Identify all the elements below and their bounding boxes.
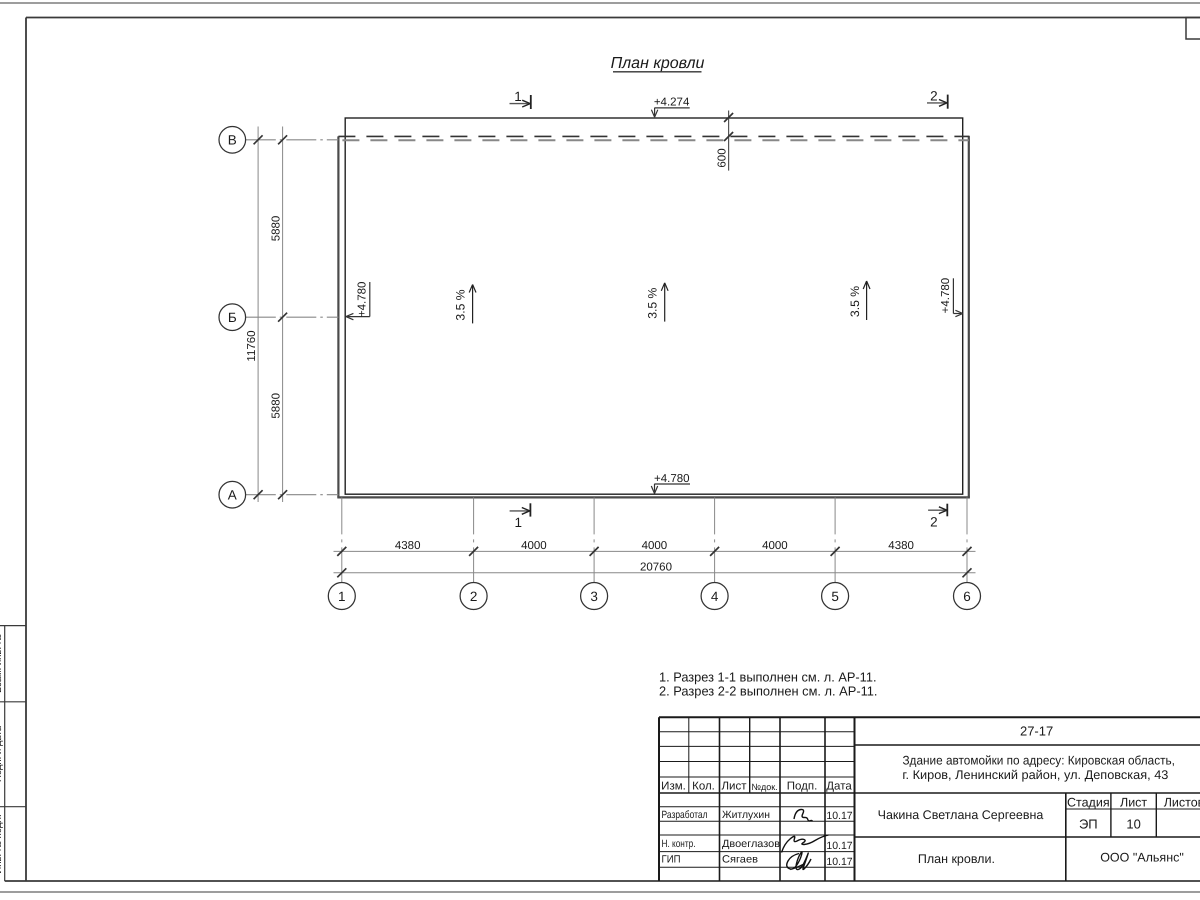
svg-text:Инв. № подл.: Инв. № подл. xyxy=(0,814,4,873)
svg-text:Подп.: Подп. xyxy=(787,781,818,793)
svg-text:+4.274: +4.274 xyxy=(654,97,690,109)
svg-text:+4.780: +4.780 xyxy=(940,278,952,314)
svg-text:5880: 5880 xyxy=(270,393,282,419)
svg-text:20760: 20760 xyxy=(640,561,672,573)
svg-text:10.17: 10.17 xyxy=(826,840,852,852)
svg-text:Дата: Дата xyxy=(826,781,852,793)
svg-text:А: А xyxy=(228,488,237,503)
svg-text:Житлухин: Житлухин xyxy=(722,809,770,821)
svg-text:Чакина Светлана Сергеевна: Чакина Светлана Сергеевна xyxy=(878,808,1044,822)
svg-text:Лист: Лист xyxy=(1120,795,1147,809)
svg-text:3.5 %: 3.5 % xyxy=(453,289,467,320)
svg-text:10.17: 10.17 xyxy=(826,810,852,822)
svg-text:Подп. и дата: Подп. и дата xyxy=(0,725,4,782)
svg-text:11760: 11760 xyxy=(246,330,258,361)
svg-text:Б: Б xyxy=(228,310,237,325)
svg-text:+4.780: +4.780 xyxy=(356,282,368,318)
svg-text:4380: 4380 xyxy=(395,540,421,552)
svg-text:Сягаев: Сягаев xyxy=(722,854,758,866)
svg-text:Кол.: Кол. xyxy=(692,781,715,793)
svg-text:4000: 4000 xyxy=(642,540,668,552)
svg-text:10: 10 xyxy=(1126,817,1140,832)
svg-text:1: 1 xyxy=(338,589,346,604)
svg-text:Н. контр.: Н. контр. xyxy=(662,838,696,850)
svg-text:3.5 %: 3.5 % xyxy=(848,286,862,317)
svg-text:План кровли: План кровли xyxy=(611,55,705,72)
svg-text:600: 600 xyxy=(716,148,728,167)
svg-text:4000: 4000 xyxy=(762,540,788,552)
svg-text:Листов: Листов xyxy=(1164,795,1200,809)
svg-text:3: 3 xyxy=(590,589,598,604)
svg-text:г. Киров, Ленинский район, ул.: г. Киров, Ленинский район, ул. Деповская… xyxy=(902,768,1168,782)
svg-text:Разработал: Разработал xyxy=(662,809,708,821)
svg-text:Взам. инв. №: Взам. инв. № xyxy=(0,634,4,693)
svg-text:№док.: №док. xyxy=(751,782,777,792)
svg-text:ГИП: ГИП xyxy=(662,854,681,866)
svg-text:Здание автомойки по адресу: Ки: Здание автомойки по адресу: Кировская об… xyxy=(902,754,1175,768)
svg-text:ЭП: ЭП xyxy=(1079,817,1098,832)
svg-text:5: 5 xyxy=(831,589,839,604)
svg-text:Лист: Лист xyxy=(722,781,748,793)
svg-text:6: 6 xyxy=(963,589,971,604)
svg-text:2: 2 xyxy=(930,514,938,529)
svg-text:10.17: 10.17 xyxy=(826,856,852,868)
svg-text:4000: 4000 xyxy=(521,540,547,552)
svg-text:В: В xyxy=(228,133,237,148)
svg-text:4: 4 xyxy=(711,589,719,604)
svg-text:Двоеглазов: Двоеглазов xyxy=(722,838,780,850)
svg-text:2: 2 xyxy=(930,89,938,104)
svg-text:Стадия: Стадия xyxy=(1067,795,1110,809)
svg-text:4380: 4380 xyxy=(888,540,914,552)
svg-text:План кровли.: План кровли. xyxy=(918,852,995,866)
svg-text:1: 1 xyxy=(514,89,522,104)
svg-text:27-17: 27-17 xyxy=(1020,724,1053,739)
svg-text:3.5 %: 3.5 % xyxy=(645,287,659,318)
svg-text:2. Разрез 2-2 выполнен см. л.: 2. Разрез 2-2 выполнен см. л. АР-11. xyxy=(659,683,878,698)
svg-text:+4.780: +4.780 xyxy=(654,473,690,485)
svg-text:ООО "Альянс": ООО "Альянс" xyxy=(1100,851,1184,865)
svg-text:5880: 5880 xyxy=(270,216,282,242)
svg-text:2: 2 xyxy=(470,589,478,604)
svg-text:1: 1 xyxy=(514,515,522,530)
svg-text:Изм.: Изм. xyxy=(661,781,686,793)
